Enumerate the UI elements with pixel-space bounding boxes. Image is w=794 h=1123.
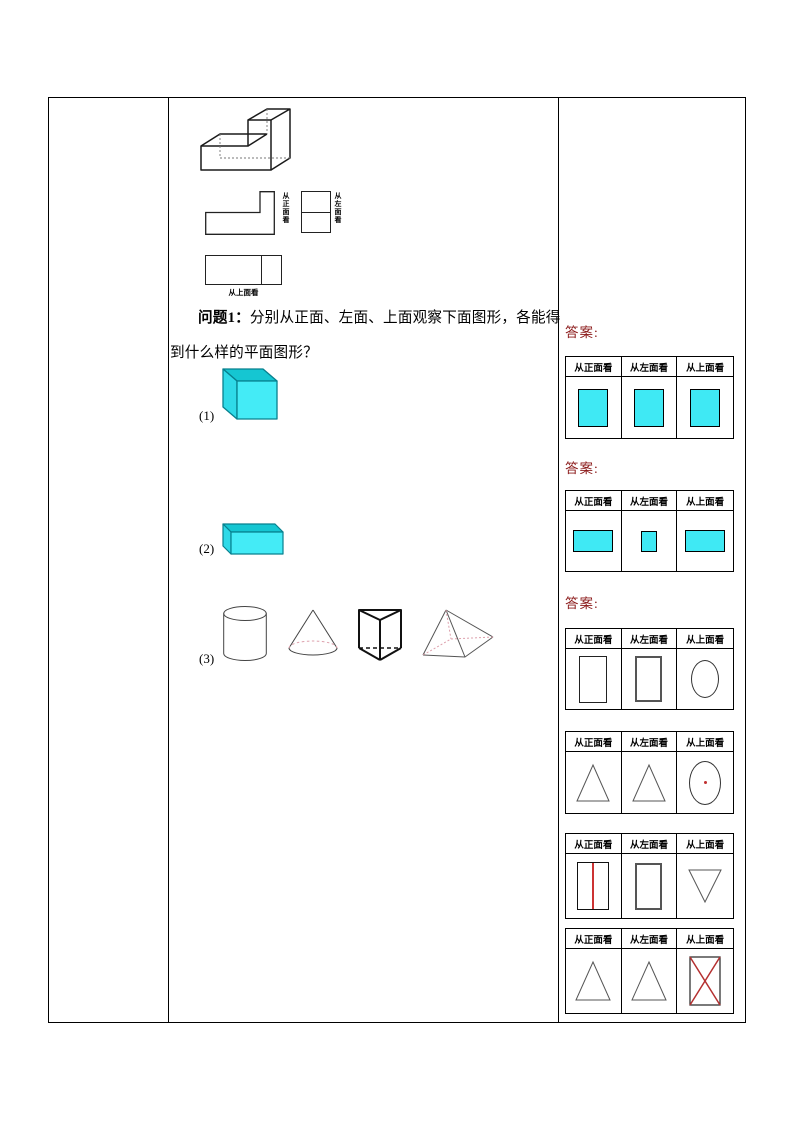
cyan-wide-rect-shape — [573, 530, 613, 552]
cube-figure — [221, 367, 281, 423]
problem-text-part2: 到什么样的平面图形？ — [170, 345, 318, 361]
cyan-wide-rect-shape — [685, 530, 725, 552]
cube-front-cell — [566, 377, 622, 438]
answer-table-prism: 从正面看 从左面看 从上面看 — [565, 833, 734, 919]
header-left-view: 从左面看 — [622, 929, 678, 949]
prism-top-cell — [677, 854, 733, 918]
item3-number: (3) — [199, 651, 214, 667]
triangle-outline-shape — [574, 960, 612, 1002]
cube-top-cell — [677, 377, 733, 438]
header-top-view: 从上面看 — [677, 491, 733, 511]
problem-number-label: 问题1： — [198, 310, 250, 326]
header-top-view: 从上面看 — [677, 357, 733, 377]
pyramid-front-cell — [566, 949, 622, 1013]
cone-top-cell — [677, 752, 733, 813]
ellipse-with-red-dot-shape — [689, 761, 721, 805]
header-left-view: 从左面看 — [622, 357, 678, 377]
prism-front-cell — [566, 854, 622, 918]
answer-label-2: 答案: — [565, 457, 599, 477]
cyan-square-shape — [634, 389, 664, 427]
table-column-divider-right — [558, 98, 559, 1022]
cone-left-cell — [622, 752, 678, 813]
header-front-view: 从正面看 — [566, 357, 622, 377]
problem-text-line1: 问题1：分别从正面、左面、上面观察下面图形，各能得 — [198, 306, 561, 327]
pyramid-left-cell — [622, 949, 678, 1013]
left-view-divider — [302, 212, 330, 213]
top-view-shape — [205, 255, 282, 285]
problem-text-part1: 分别从正面、左面、上面观察下面图形，各能得 — [250, 310, 561, 326]
front-view-shape — [205, 191, 275, 235]
header-left-view: 从左面看 — [622, 629, 678, 649]
l-shaped-solid-figure — [199, 106, 299, 172]
top-view-label: 从上面看 — [205, 287, 282, 298]
cuboid-top-cell — [677, 511, 733, 571]
triangle-outline-shape — [575, 763, 611, 803]
pyramid-top-cell — [677, 949, 733, 1013]
cube-left-cell — [622, 377, 678, 438]
header-front-view: 从正面看 — [566, 732, 622, 752]
top-view-divider — [261, 256, 262, 284]
rectangle-with-red-line-shape — [577, 862, 609, 910]
cuboid-left-cell — [622, 511, 678, 571]
header-left-view: 从左面看 — [622, 834, 678, 854]
problem-text-line2: 到什么样的平面图形？ — [170, 341, 318, 362]
answer-table-cuboid: 从正面看 从左面看 从上面看 — [565, 490, 734, 572]
rectangle-outline-shape — [579, 656, 607, 703]
cuboid-front-cell — [566, 511, 622, 571]
cone-front-cell — [566, 752, 622, 813]
cone-figure — [287, 608, 339, 656]
triangle-outline-shape — [631, 763, 667, 803]
inverted-triangle-outline-shape — [687, 868, 723, 904]
triangular-prism-figure — [357, 602, 403, 664]
header-top-view: 从上面看 — [677, 629, 733, 649]
red-center-dot — [704, 781, 707, 784]
cylinder-figure — [222, 605, 268, 662]
header-front-view: 从正面看 — [566, 929, 622, 949]
item1-number: (1) — [199, 408, 214, 424]
answer-label-1: 答案: — [565, 321, 599, 341]
header-left-view: 从左面看 — [622, 732, 678, 752]
answer-table-cube: 从正面看 从左面看 从上面看 — [565, 356, 734, 439]
answer-table-cone: 从正面看 从左面看 从上面看 — [565, 731, 734, 814]
left-view-label: 从左面看 — [333, 192, 342, 224]
cyan-small-rect-shape — [641, 531, 657, 552]
answer-table-pyramid: 从正面看 从左面看 从上面看 — [565, 928, 734, 1014]
header-front-view: 从正面看 — [566, 834, 622, 854]
answer-label-3: 答案: — [565, 592, 599, 612]
front-view-label: 从正面看 — [281, 192, 290, 224]
answer-table-cylinder: 从正面看 从左面看 从上面看 — [565, 628, 734, 710]
cyan-square-shape — [690, 389, 720, 427]
worksheet-page: 从正面看 从左面看 从上面看 问题1：分别从正面、左面、上面观察下面图形，各能得… — [0, 0, 794, 1123]
cyan-square-shape — [578, 389, 608, 427]
triangle-outline-shape — [630, 960, 668, 1002]
rectangle-with-red-cross-shape — [689, 956, 721, 1006]
header-front-view: 从正面看 — [566, 491, 622, 511]
cylinder-left-cell — [622, 649, 678, 709]
rectangle-outline-shape — [635, 656, 662, 702]
prism-left-cell — [622, 854, 678, 918]
pyramid-figure — [421, 606, 497, 660]
left-view-shape — [301, 191, 331, 233]
table-column-divider-left — [168, 98, 169, 1022]
header-top-view: 从上面看 — [677, 732, 733, 752]
rectangle-outline-shape — [635, 863, 662, 910]
cuboid-figure — [221, 522, 289, 556]
header-front-view: 从正面看 — [566, 629, 622, 649]
header-left-view: 从左面看 — [622, 491, 678, 511]
item2-number: (2) — [199, 541, 214, 557]
cylinder-front-cell — [566, 649, 622, 709]
cylinder-top-cell — [677, 649, 733, 709]
header-top-view: 从上面看 — [677, 834, 733, 854]
header-top-view: 从上面看 — [677, 929, 733, 949]
ellipse-outline-shape — [691, 660, 719, 698]
red-vertical-line — [592, 863, 594, 909]
